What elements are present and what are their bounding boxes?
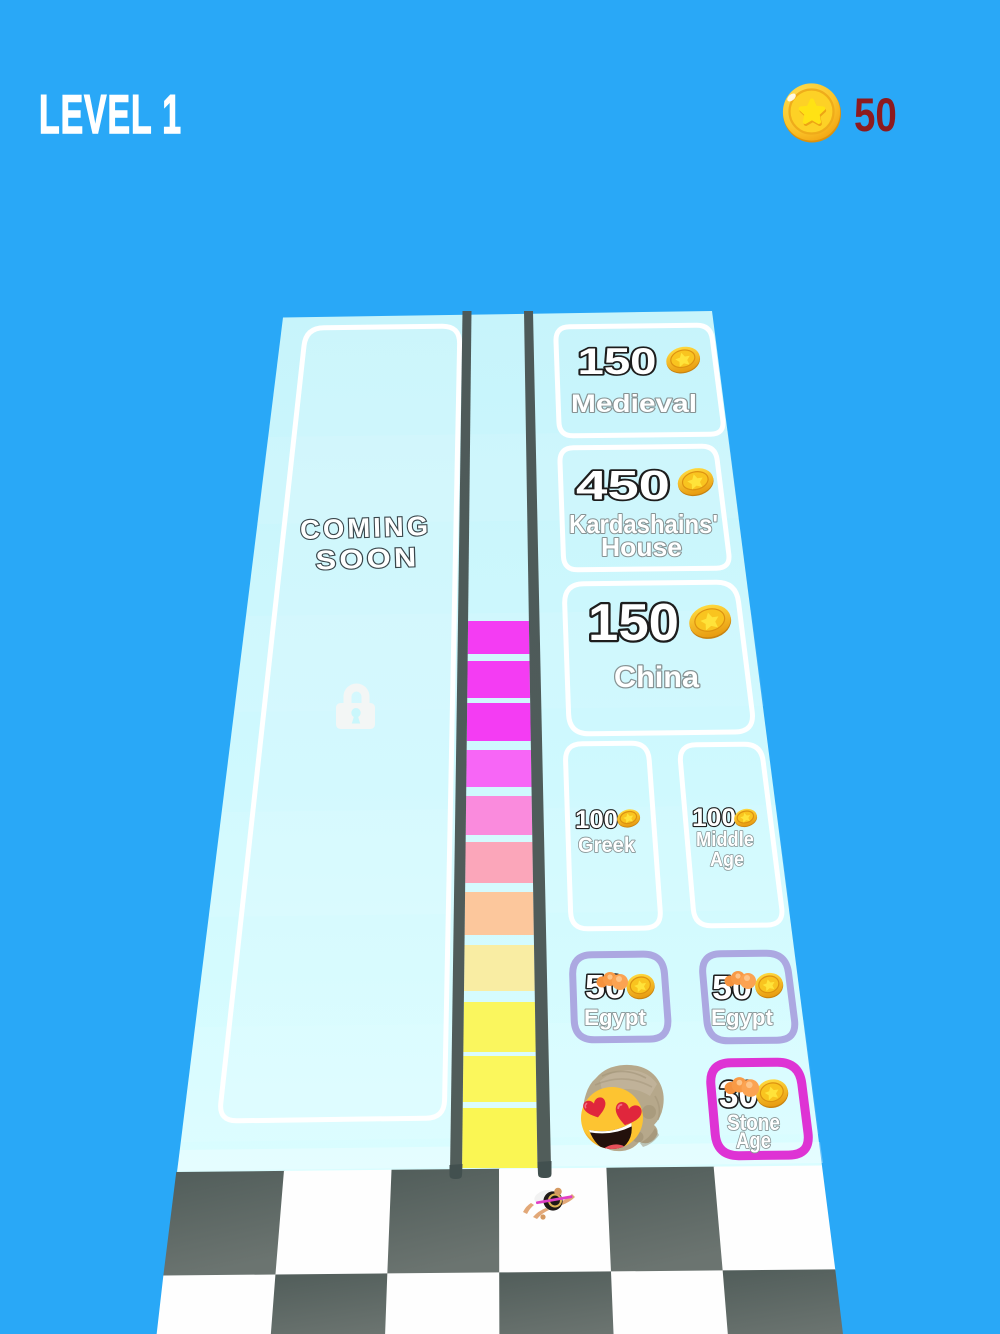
svg-text:150: 150 xyxy=(588,594,679,652)
svg-text:Age: Age xyxy=(710,849,744,871)
svg-text:100: 100 xyxy=(692,804,736,832)
svg-text:Egypt: Egypt xyxy=(711,1005,774,1030)
svg-text:Egypt: Egypt xyxy=(584,1005,647,1030)
svg-text:Middle: Middle xyxy=(696,829,754,851)
svg-text:House: House xyxy=(601,532,682,562)
svg-text:150: 150 xyxy=(578,341,657,382)
svg-text:LEVEL 1: LEVEL 1 xyxy=(39,84,182,145)
svg-text:SOON: SOON xyxy=(315,542,420,575)
svg-text:50: 50 xyxy=(854,89,897,141)
svg-text:COMING: COMING xyxy=(300,511,432,545)
svg-text:450: 450 xyxy=(576,462,670,508)
svg-text:China: China xyxy=(614,661,699,694)
svg-text:Medieval: Medieval xyxy=(571,390,697,418)
svg-text:100: 100 xyxy=(575,806,618,834)
svg-text:Age: Age xyxy=(736,1128,771,1153)
svg-text:Greek: Greek xyxy=(578,834,635,857)
